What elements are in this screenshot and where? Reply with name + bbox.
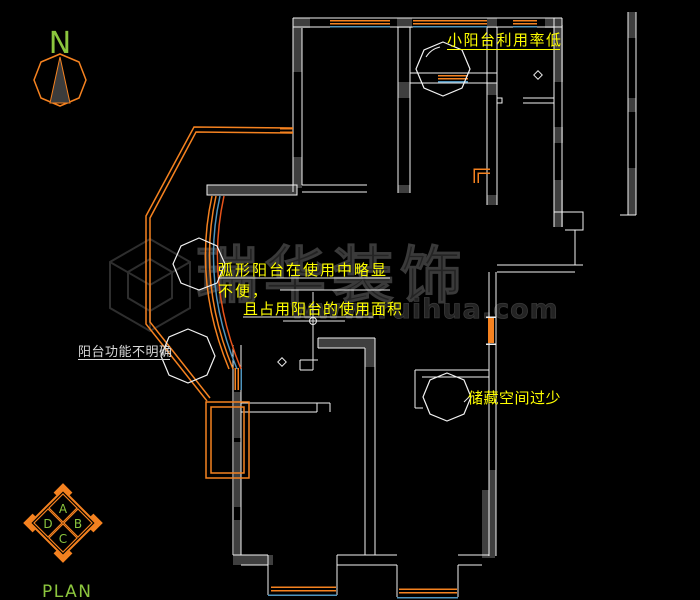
fixture-bracket: [474, 169, 490, 183]
annotation-arc-line2: 不便，: [218, 282, 269, 300]
compass-letter-b: B: [74, 517, 82, 531]
section-compass: A B C D: [26, 486, 100, 560]
revision-cloud-small-balcony: [416, 42, 470, 96]
annotation-storage: 储藏空间过少: [468, 389, 561, 407]
revision-cloud-storage: [423, 373, 471, 421]
annotation-small-balcony: 小阳台利用率低: [447, 31, 563, 49]
compass-letter-a: A: [59, 502, 68, 516]
marker-diamond: [534, 71, 542, 79]
floor-plan-canvas: 瑞华装饰 www.ruihua.com N: [0, 0, 700, 600]
marker-diamond: [278, 358, 286, 366]
riser-window: [488, 318, 494, 343]
north-needle: [50, 57, 70, 103]
annotation-arc-line3: 且占用阳台的使用面积: [243, 300, 403, 318]
compass-letter-c: C: [59, 532, 67, 546]
annotation-balcony-function: 阳台功能不明确: [78, 345, 173, 360]
north-label: N: [49, 26, 71, 61]
annotation-arc-line1: 弧形阳台在使用中略显: [218, 261, 388, 279]
north-arrow: N: [34, 26, 86, 106]
compass-letter-d: D: [43, 517, 52, 531]
revision-clouds: [161, 42, 471, 421]
plan-label: PLAN: [42, 582, 92, 600]
